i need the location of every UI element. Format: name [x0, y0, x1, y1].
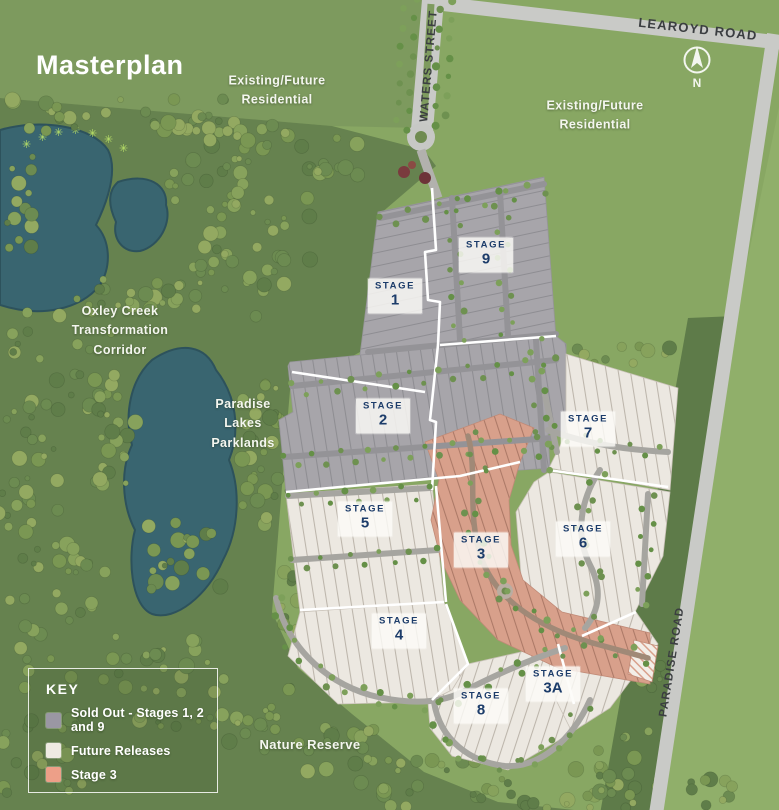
legend-item-stage3: Stage 3 — [46, 767, 217, 782]
stage-8-badge: STAGE8 — [454, 689, 508, 724]
svg-text:✳: ✳ — [22, 138, 31, 151]
stage-7-badge: STAGE7 — [561, 412, 615, 447]
svg-text:✳: ✳ — [119, 142, 128, 155]
masterplan-map: ✳✳✳ ✳✳✳✳ — [0, 0, 779, 810]
legend-title: KEY — [46, 681, 217, 697]
stage-2-badge: STAGE2 — [356, 399, 410, 434]
stage-3-badge: STAGE3 — [454, 533, 508, 568]
residential-nw-label: Existing/FutureResidential — [202, 72, 352, 111]
svg-text:✳: ✳ — [54, 126, 63, 139]
stage-3a-badge: STAGE3A — [526, 667, 580, 702]
legend-item-future: Future Releases — [46, 743, 217, 758]
stage3-swatch — [46, 767, 61, 782]
legend-item-sold-out: Sold Out - Stages 1, 2 and 9 — [46, 706, 217, 734]
future-releases-swatch — [46, 743, 61, 758]
svg-text:✳: ✳ — [104, 133, 113, 146]
page-title: Masterplan — [36, 50, 184, 81]
map-legend: KEY Sold Out - Stages 1, 2 and 9 Future … — [28, 668, 218, 793]
svg-text:✳: ✳ — [88, 127, 97, 140]
sold-out-swatch — [46, 713, 61, 728]
compass-north-label: N — [693, 76, 702, 90]
stage-5-badge: STAGE5 — [338, 502, 392, 537]
oxley-creek-label: Oxley CreekTransformationCorridor — [45, 302, 195, 360]
stage-9-badge: STAGE9 — [459, 238, 513, 273]
stage-4-badge: STAGE4 — [372, 614, 426, 649]
nature-reserve-label: Nature Reserve — [235, 735, 385, 755]
roundabout-island — [415, 131, 427, 143]
stage-1-badge: STAGE1 — [368, 279, 422, 314]
residential-ne-label: Existing/FutureResidential — [520, 97, 670, 136]
parklands-label: ParadiseLakesParklands — [168, 395, 318, 453]
stage-6-badge: STAGE6 — [556, 522, 610, 557]
